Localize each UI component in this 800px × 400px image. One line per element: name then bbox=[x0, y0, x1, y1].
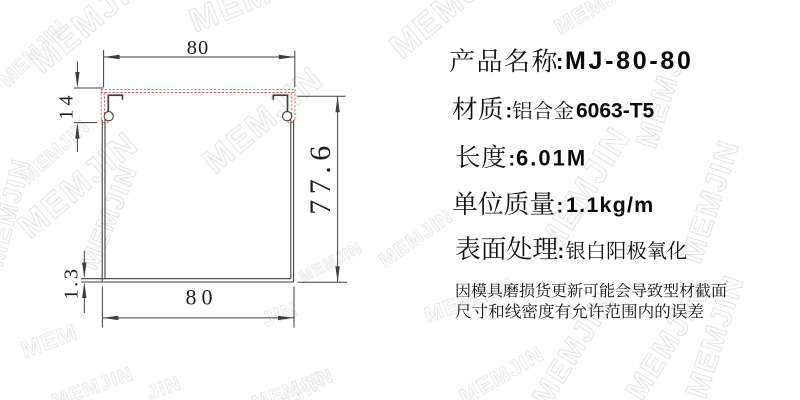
svg-text:1.3: 1.3 bbox=[61, 266, 83, 299]
svg-text:JIN: JIN bbox=[259, 298, 301, 332]
svg-text:MEM: MEM bbox=[18, 318, 81, 362]
svg-text::: : bbox=[558, 241, 565, 263]
svg-text:MEMJIN: MEMJIN bbox=[383, 0, 518, 66]
svg-text:MEMJIN: MEMJIN bbox=[49, 363, 136, 400]
svg-text:MEMJIN: MEMJIN bbox=[675, 136, 746, 267]
svg-text::: : bbox=[506, 101, 513, 123]
svg-text:MEMJIN: MEMJIN bbox=[530, 120, 639, 262]
svg-text:MEMJIN: MEMJIN bbox=[184, 0, 332, 40]
svg-text:JIN: JIN bbox=[144, 372, 184, 400]
svg-text:MEMJIN: MEMJIN bbox=[375, 205, 457, 272]
svg-text:MEMJIN: MEMJIN bbox=[421, 272, 517, 327]
svg-text:MEMJIN: MEMJIN bbox=[550, 0, 643, 39]
svg-text:MEMJIN: MEMJIN bbox=[297, 239, 365, 286]
svg-text::: : bbox=[556, 49, 563, 74]
svg-text::: : bbox=[509, 149, 516, 171]
svg-text:80: 80 bbox=[187, 37, 210, 59]
svg-text:77.6: 77.6 bbox=[304, 140, 337, 215]
svg-text::: : bbox=[557, 196, 564, 218]
svg-text:80: 80 bbox=[186, 285, 218, 310]
svg-text:MEMJIN: MEMJIN bbox=[526, 286, 622, 400]
svg-text:6063-T5: 6063-T5 bbox=[576, 100, 655, 123]
svg-text:1.1kg/m: 1.1kg/m bbox=[566, 193, 654, 217]
svg-text:14: 14 bbox=[55, 92, 77, 120]
svg-text:MJ-80-80: MJ-80-80 bbox=[565, 47, 694, 75]
svg-text:6.01M: 6.01M bbox=[516, 146, 587, 171]
